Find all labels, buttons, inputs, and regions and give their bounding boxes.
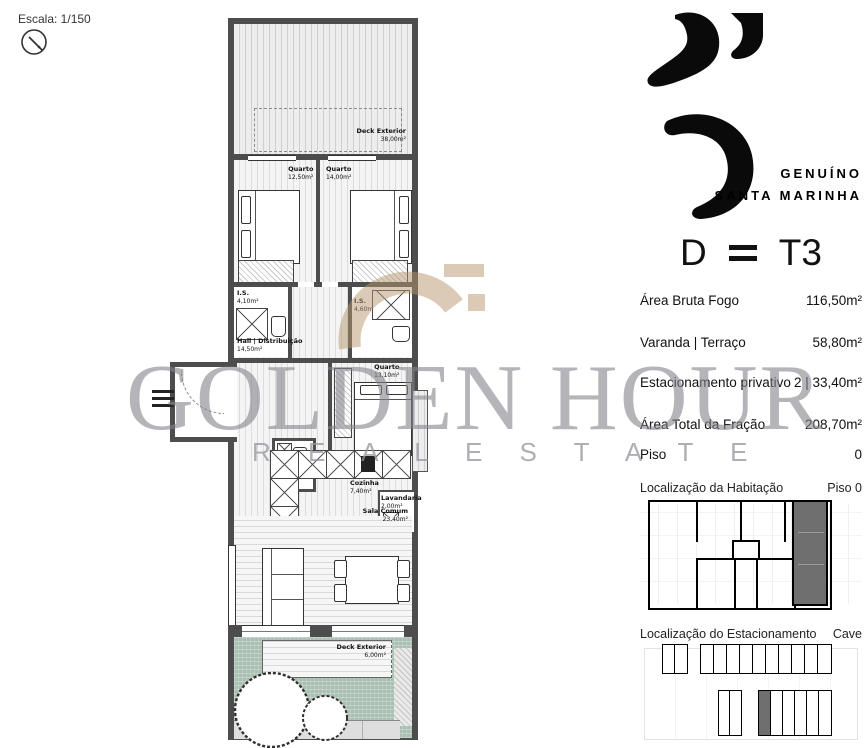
spec-row: Varanda | Terraço 58,80m² — [640, 335, 862, 350]
kitchen-counter — [382, 450, 411, 479]
wall — [316, 160, 320, 282]
room-label-sala: Sala Comum 23,40m² — [340, 508, 408, 523]
unit-divider — [740, 500, 742, 542]
wing — [756, 558, 796, 610]
room-label-hall: Hall | Distribuição 14,50m² — [237, 338, 302, 353]
spec-row: Estacionamento privativo 2 | 33,40m² — [640, 375, 862, 390]
kitchen-sink — [354, 450, 383, 479]
room-name: Hall | Distribuição — [237, 338, 302, 346]
shower — [236, 308, 268, 340]
room-name: Lavandaria — [381, 495, 422, 503]
window — [328, 155, 376, 161]
north-compass-icon — [20, 28, 50, 58]
room-area: 13,10m² — [374, 372, 399, 379]
toilet — [271, 316, 286, 337]
wall — [228, 625, 242, 637]
door-opening — [228, 374, 234, 420]
locator-habitacao-header: Localização da Habitação Piso 0 — [640, 481, 862, 495]
wardrobe — [334, 368, 352, 438]
floor-plan: Deck Exterior 38,00m² Quarto 12,50m² Qua… — [150, 8, 440, 745]
room-name: Deck Exterior — [357, 128, 407, 136]
chair — [397, 584, 410, 602]
spec-label: Área Total da Fração — [640, 417, 765, 432]
locator-estacionamento-map — [640, 642, 862, 742]
wing — [696, 558, 736, 610]
room-area: 14,00m² — [326, 174, 351, 181]
room-name: Deck Exterior — [320, 644, 386, 652]
room-label-deck-bottom: Deck Exterior 6,00m² — [320, 644, 386, 659]
chair — [334, 584, 347, 602]
window — [228, 545, 236, 627]
unit-letter: D — [680, 232, 707, 274]
equals-icon — [729, 245, 757, 261]
scale-label: Escala: 1/150 — [18, 12, 91, 26]
bed — [350, 190, 412, 264]
room-label-quarto2: Quarto 14,00m² — [326, 166, 351, 181]
entrance — [170, 362, 237, 442]
wall — [348, 282, 352, 362]
parking-stall — [674, 644, 688, 674]
spec-row: Área Bruta Fogo 116,50m² — [640, 293, 862, 308]
wardrobe — [352, 260, 408, 284]
stove — [361, 456, 375, 472]
kitchen-counter — [270, 478, 299, 507]
retaining-wall — [394, 648, 412, 726]
locator-estacionamento-header: Localização do Estacionamento Cave — [640, 627, 862, 641]
locator-title: Localização do Estacionamento — [640, 627, 817, 641]
unit-heading: D T3 — [640, 232, 862, 274]
window — [248, 155, 296, 161]
spec-value: 208,70m² — [805, 417, 862, 432]
room-label-quarto3: Quarto 13,10m² — [374, 364, 399, 379]
unit-divider — [696, 500, 698, 542]
kitchen-counter — [270, 450, 299, 479]
spec-label: Piso — [640, 447, 666, 462]
parking-stall — [818, 690, 832, 736]
balcony — [412, 390, 428, 472]
core-notch — [732, 540, 760, 560]
wall — [404, 625, 418, 637]
wall — [228, 18, 418, 24]
room-name: Cozinha — [350, 480, 379, 488]
room-label-is1: I.S. 4,10m² — [237, 290, 259, 305]
room-area: 7,40m² — [350, 488, 379, 495]
room-area: 14,50m² — [237, 346, 302, 353]
parking-stall — [729, 690, 742, 736]
trees — [230, 666, 360, 748]
room-name: Quarto — [374, 364, 399, 372]
wardrobe — [238, 260, 294, 284]
room-area: 12,50m² — [288, 174, 313, 181]
room-name: Quarto — [326, 166, 351, 174]
room-area: 6,00m² — [320, 652, 386, 659]
highlighted-unit — [792, 500, 828, 606]
room-label-quarto1: Quarto 12,50m² — [288, 166, 313, 181]
room-name: Quarto — [288, 166, 313, 174]
locator-tag: Piso 0 — [827, 481, 862, 495]
brand-name-line2: SANTA MARINHA — [715, 188, 862, 203]
room-name: Sala Comum — [340, 508, 408, 516]
spec-label: Estacionamento privativo — [640, 375, 791, 390]
room-label-deck-top: Deck Exterior 38,00m² — [357, 128, 407, 143]
unit-typology: T3 — [779, 232, 822, 274]
sofa — [262, 548, 304, 626]
room-area: 38,00m² — [357, 136, 407, 143]
shower — [372, 290, 410, 320]
room-area: 23,40m² — [340, 516, 408, 523]
locator-habitacao-map — [640, 498, 862, 610]
bed — [238, 190, 300, 264]
spec-value: 116,50m² — [806, 293, 862, 308]
door-swing — [181, 371, 224, 414]
spec-value: 0 — [854, 447, 862, 462]
room-area: 4,10m² — [237, 298, 259, 305]
spec-label: Varanda | Terraço — [640, 335, 746, 350]
locator-title: Localização da Habitação — [640, 481, 783, 495]
floorplan-sheet: { "page": { "scale_label": "Escala: 1/15… — [0, 0, 867, 745]
locator-tag: Cave — [833, 627, 862, 641]
spec-value: 2 | 33,40m² — [794, 375, 862, 390]
toilet — [392, 326, 410, 342]
spec-value: 58,80m² — [812, 335, 862, 350]
unit-divider — [784, 500, 786, 542]
parking-stall — [817, 644, 832, 674]
brand-name-line1: GENUÍNO — [780, 166, 862, 181]
room-label-cozinha: Cozinha 7,40m² — [350, 480, 379, 495]
wall — [228, 358, 328, 363]
room-name: I.S. — [237, 290, 259, 298]
spec-row: Área Total da Fração 208,70m² — [640, 417, 862, 432]
kitchen-counter — [298, 450, 327, 479]
bed — [354, 382, 412, 456]
wall — [328, 358, 418, 363]
spec-label: Área Bruta Fogo — [640, 293, 739, 308]
dining-table — [345, 556, 399, 604]
door-opening — [322, 282, 338, 287]
stairs-icon — [152, 390, 174, 407]
door-opening — [298, 282, 314, 287]
chair — [397, 560, 410, 578]
wall — [310, 625, 332, 637]
spec-row: Piso 0 — [640, 447, 862, 462]
kitchen-counter — [326, 450, 355, 479]
chair — [334, 560, 347, 578]
